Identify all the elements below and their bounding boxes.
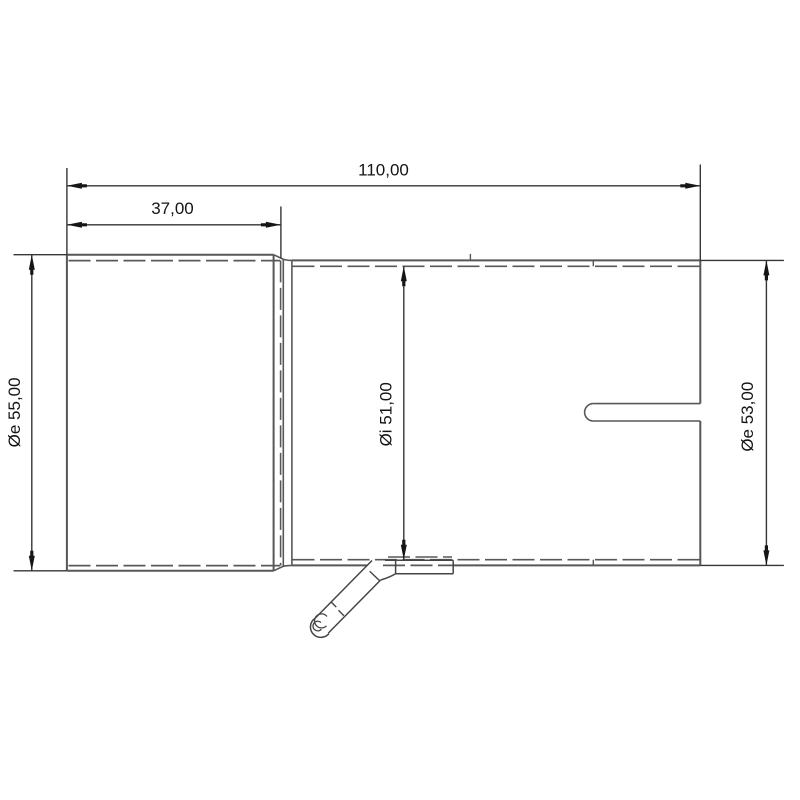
svg-text:37,00: 37,00 <box>151 199 194 218</box>
svg-text:Øe 53,00: Øe 53,00 <box>738 382 757 452</box>
svg-text:Øe 55,00: Øe 55,00 <box>5 377 24 447</box>
svg-text:Øi 51,00: Øi 51,00 <box>376 382 395 446</box>
svg-text:110,00: 110,00 <box>358 160 409 179</box>
